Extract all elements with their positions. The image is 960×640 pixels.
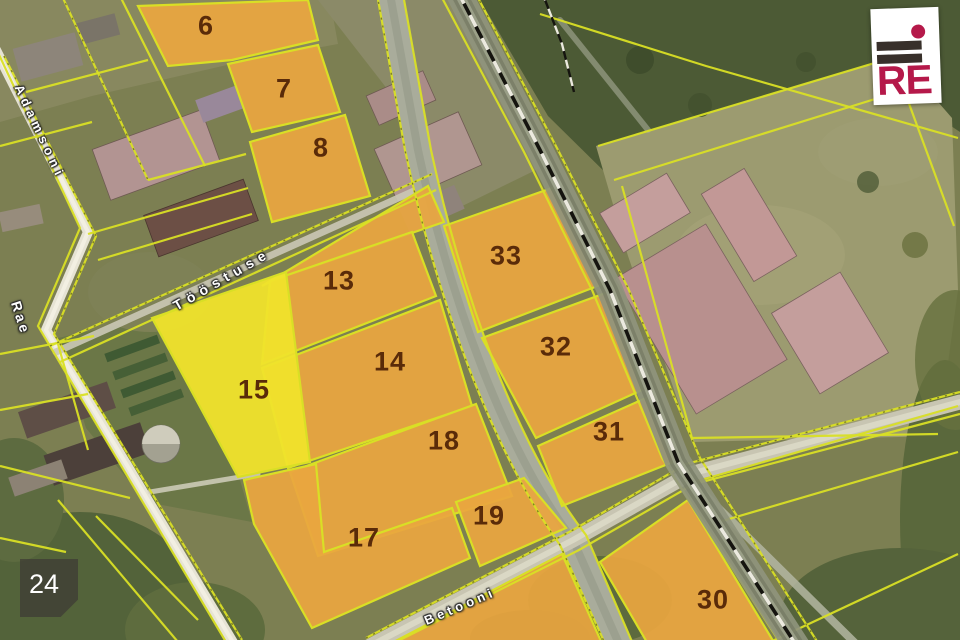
satellite-map [0,0,960,640]
re24-logo[interactable]: RE [870,7,941,105]
logo-dot-icon [911,24,925,38]
marker-count: 24 [29,571,69,606]
map-canvas[interactable]: 67813331432151831171930AdamsoniRaeTööstu… [0,0,960,640]
logo-text: RE [876,59,932,102]
map-marker-cluster[interactable]: 24 [20,559,78,617]
logo-bar-icon [876,40,921,51]
